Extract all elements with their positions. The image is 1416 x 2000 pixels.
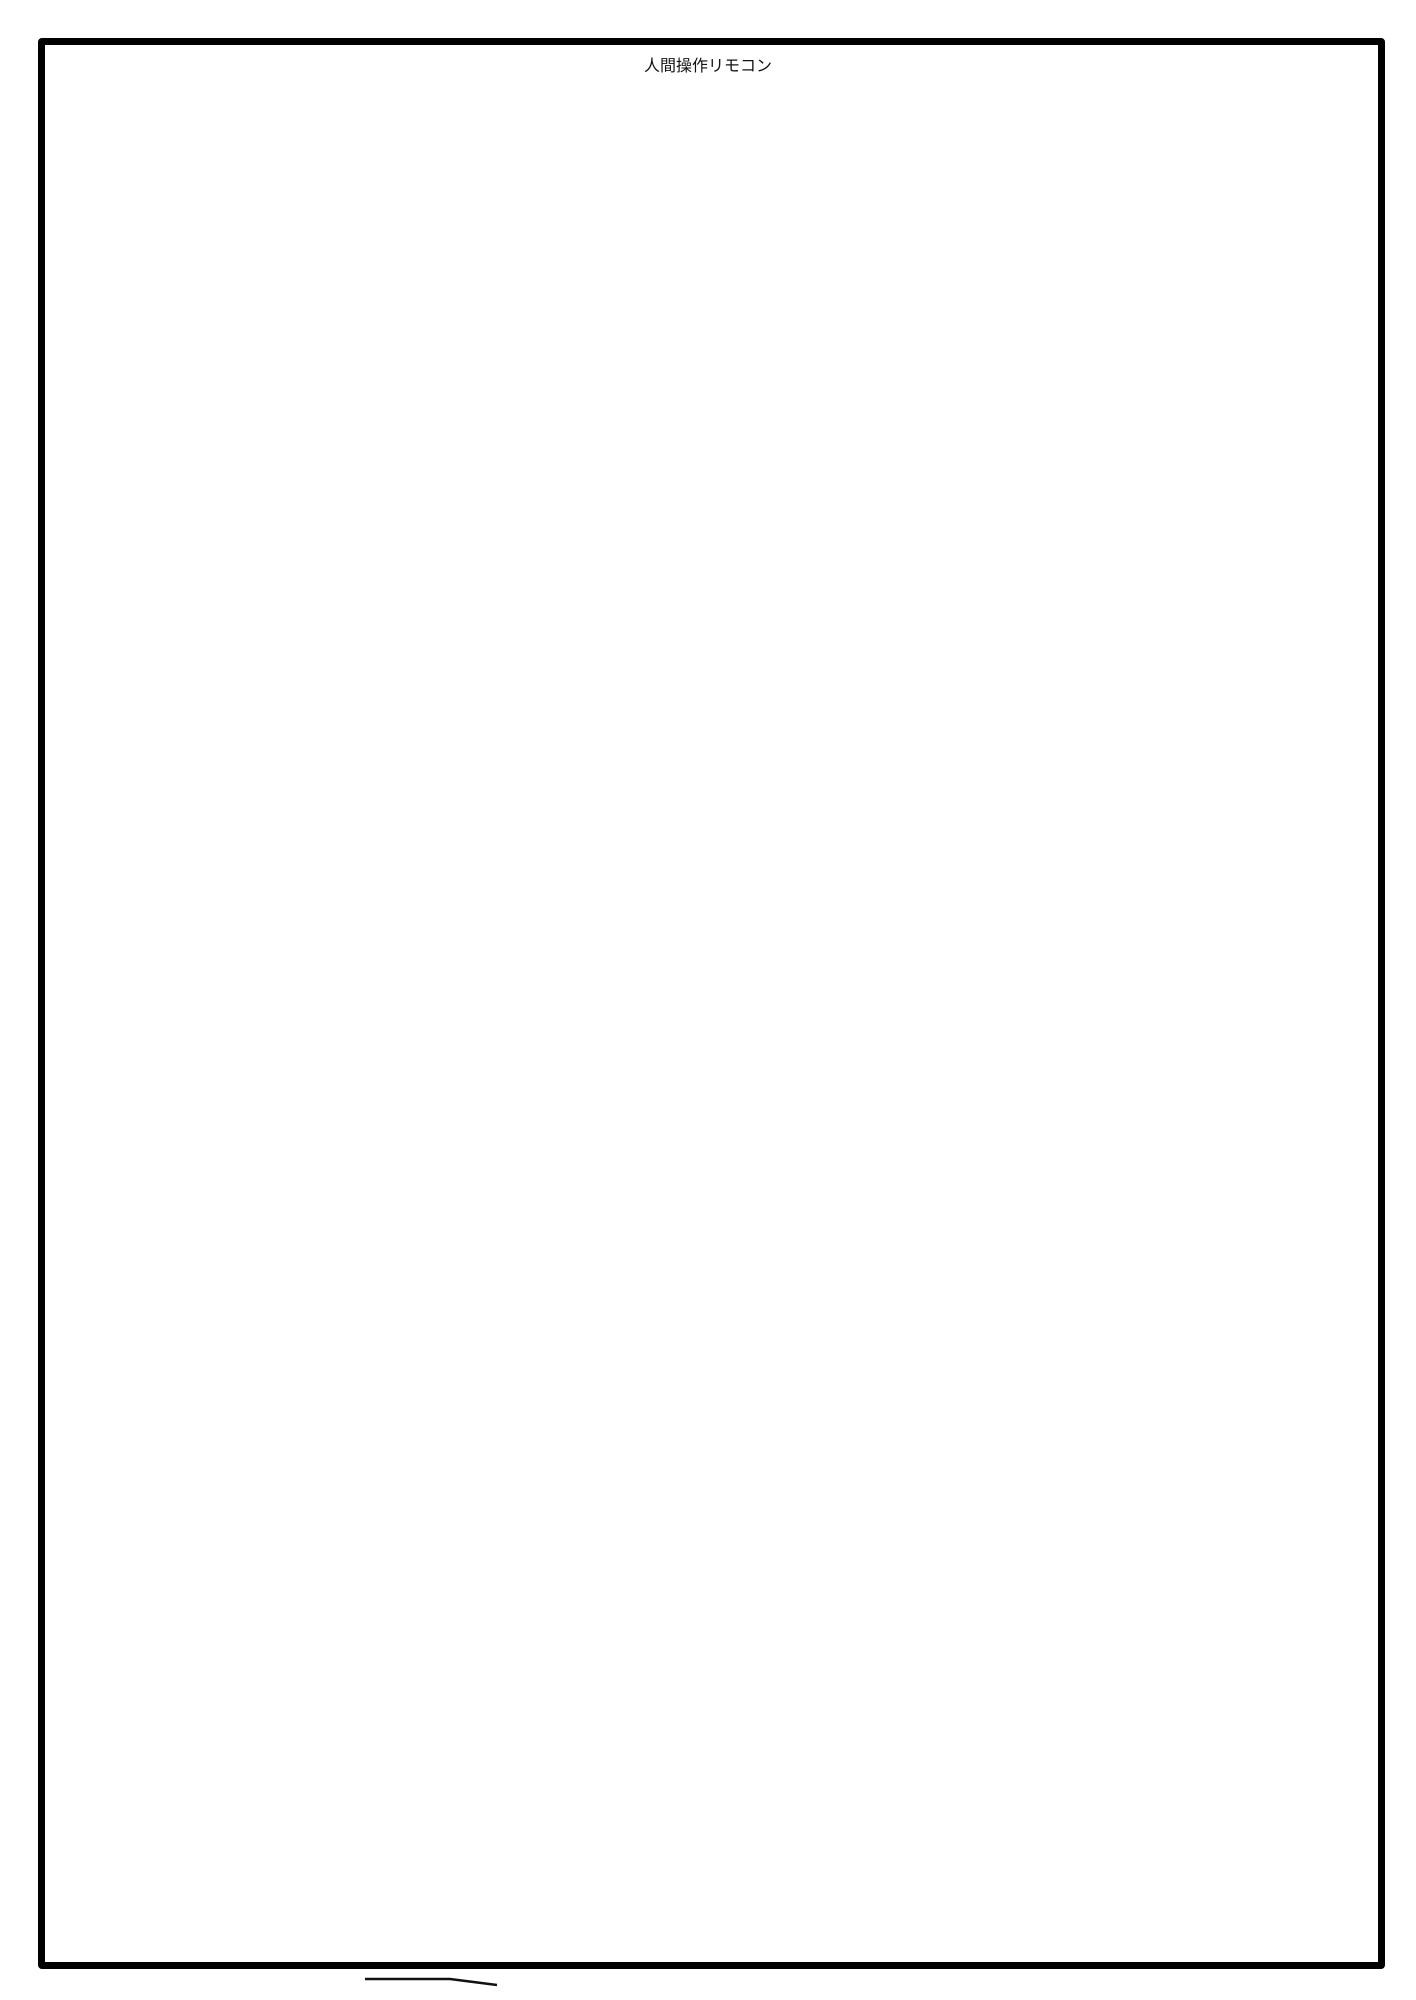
outer-frame bbox=[38, 38, 1385, 1969]
remote-right-edge bbox=[0, 8, 10, 1602]
page-title: 人間操作リモコン bbox=[0, 52, 1416, 76]
diagram-page: 人間操作リモコン bbox=[0, 0, 1416, 2000]
remote-top-edge bbox=[0, 0, 448, 8]
